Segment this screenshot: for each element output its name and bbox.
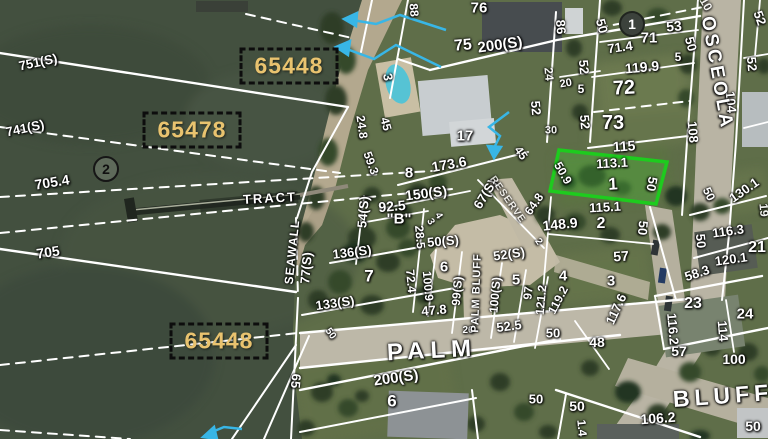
- house-roof: [742, 92, 768, 147]
- aerial-parcel-map[interactable]: 751(S)741(S)705.470565887675200(S)324.84…: [0, 0, 768, 439]
- house-roof: [737, 408, 768, 438]
- mansion-roof: [482, 2, 562, 52]
- map-imagery: [0, 0, 768, 439]
- garage-roof: [565, 8, 583, 34]
- poolhouse-annex-roof: [449, 118, 496, 147]
- dock-structure: [196, 1, 248, 12]
- house-roof: [387, 391, 469, 439]
